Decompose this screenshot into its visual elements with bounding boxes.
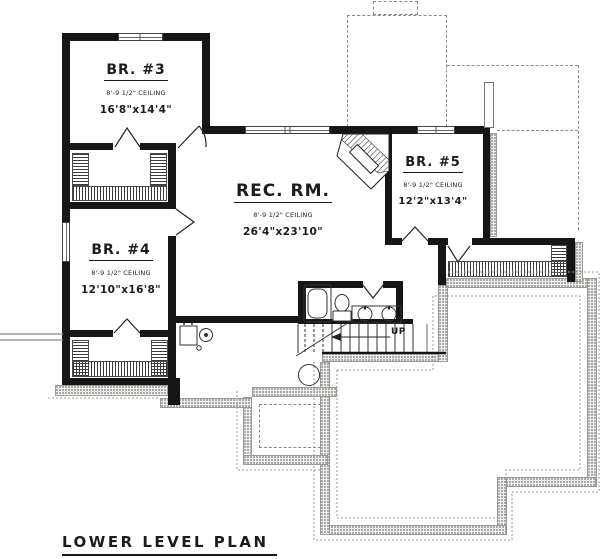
hatch-closet-bottom (72, 186, 167, 201)
wall-bath-top-right (383, 281, 403, 288)
chimney-outline (484, 82, 494, 128)
door-bath (362, 284, 384, 298)
wall-storage-left (438, 245, 446, 285)
room-dims-rec: 26'4"x23'10" (243, 226, 323, 238)
room-name-br3: BR. #3 (104, 63, 167, 81)
stair-break-line (296, 319, 354, 356)
wall-br5-bottom-1 (385, 238, 402, 245)
wall-rec-lower-left (168, 316, 300, 323)
room-ceiling-br3: 8'-9 1/2" CEILING (106, 89, 165, 97)
wall-br3-top-left (62, 33, 118, 41)
foundation-band-right (587, 278, 597, 487)
wall-br5-bottom-3 (472, 238, 575, 245)
room-label-br5: BR. #5 8'-9 1/2" CEILING 12'2"x13'4" (383, 152, 483, 208)
door-br5 (402, 227, 428, 241)
room-ceiling-rec: 8'-9 1/2" CEILING (253, 211, 312, 219)
dashed-outline-bay (373, 1, 418, 15)
wall-lowerstrip-bottom (62, 378, 180, 385)
room-name-br5: BR. #5 (403, 156, 463, 173)
wall-storage-right (567, 245, 575, 282)
door-storage (448, 246, 470, 262)
floor-drain (197, 329, 213, 351)
dashed-line-garage-right (578, 65, 579, 230)
foundation-band-bottom (327, 525, 506, 535)
hatch-storage-bottom (448, 261, 567, 277)
wall-br5-right (483, 126, 490, 245)
hatch-closet-left (72, 153, 89, 186)
window-rec (245, 126, 330, 134)
toilet (333, 295, 351, 322)
room-label-br4: BR. #4 8'-9 1/2" CEILING 12'10"x16'8" (60, 240, 182, 296)
window-br3 (118, 33, 163, 41)
dashed-line-garage-top (447, 65, 578, 66)
room-dims-br5: 12'2"x13'4" (398, 196, 467, 207)
foundation-pocket-bottom (243, 455, 328, 465)
foundation-band-connector (438, 285, 448, 362)
wall-br3-bottom-left (62, 143, 113, 150)
wall-rec-top-1 (202, 126, 245, 134)
foundation-band-step-horizontal (502, 477, 596, 487)
wall-br5-bottom-2 (428, 238, 448, 245)
bathtub (304, 285, 331, 322)
dashed-line-garage-inner (497, 130, 578, 131)
wall-bath-bottom (298, 319, 413, 324)
stair-direction-arrow (331, 333, 390, 341)
hatch-lowerstrip-bottom (72, 361, 168, 377)
wall-br4-top (62, 202, 176, 209)
door-br4 (176, 209, 194, 235)
room-ceiling-br4: 8'-9 1/2" CEILING (91, 269, 150, 277)
door-br4-bottom (114, 319, 140, 333)
foundation-br5-right (490, 133, 497, 237)
door-rec-closet-leaf (178, 126, 199, 148)
room-dims-br4: 12'10"x16'8" (81, 284, 161, 296)
plan-title: LOWER LEVEL PLAN (62, 533, 277, 556)
foundation-pocket-top (252, 387, 337, 397)
foundation-storage-right (575, 242, 583, 282)
room-name-rec: REC. RM. (234, 182, 332, 203)
wall-rec-top-2 (330, 126, 417, 134)
room-dims-br3: 16'8"x14'4" (100, 104, 172, 116)
stairs (296, 319, 446, 356)
room-label-rec: REC. RM. 8'-9 1/2" CEILING 26'4"x23'10" (213, 182, 353, 239)
dashed-pocket-inner (259, 404, 321, 448)
wall-corner-bottom-left (168, 378, 180, 405)
foundation-band-below-stairs (322, 352, 446, 362)
foundation-below-br4 (55, 385, 168, 396)
hatch-storage-right (551, 245, 567, 277)
dashed-outline-upper-structure (347, 15, 447, 127)
room-ceiling-br5: 8'-9 1/2" CEILING (403, 181, 462, 189)
wall-br4-bottom-left (62, 330, 113, 337)
floor-plan-canvas: BR. #3 8'-9 1/2" CEILING 16'8"x14'4" BR.… (0, 0, 600, 559)
room-label-br3: BR. #3 8'-9 1/2" CEILING 16'8"x14'4" (66, 60, 206, 116)
room-name-br4: BR. #4 (89, 243, 152, 261)
window-br5 (417, 126, 455, 134)
wall-br4-bottom-right (140, 330, 176, 337)
water-heater (180, 323, 197, 345)
stoop-footing-lines (0, 334, 63, 340)
door-br3 (115, 128, 140, 147)
hatch-closet-right (150, 153, 167, 186)
fireplace (337, 134, 389, 189)
wall-bath-top-left (298, 281, 363, 288)
sump-pit (299, 365, 320, 386)
wall-closet-right (168, 143, 176, 209)
stairs-up-label: UP (391, 327, 406, 337)
